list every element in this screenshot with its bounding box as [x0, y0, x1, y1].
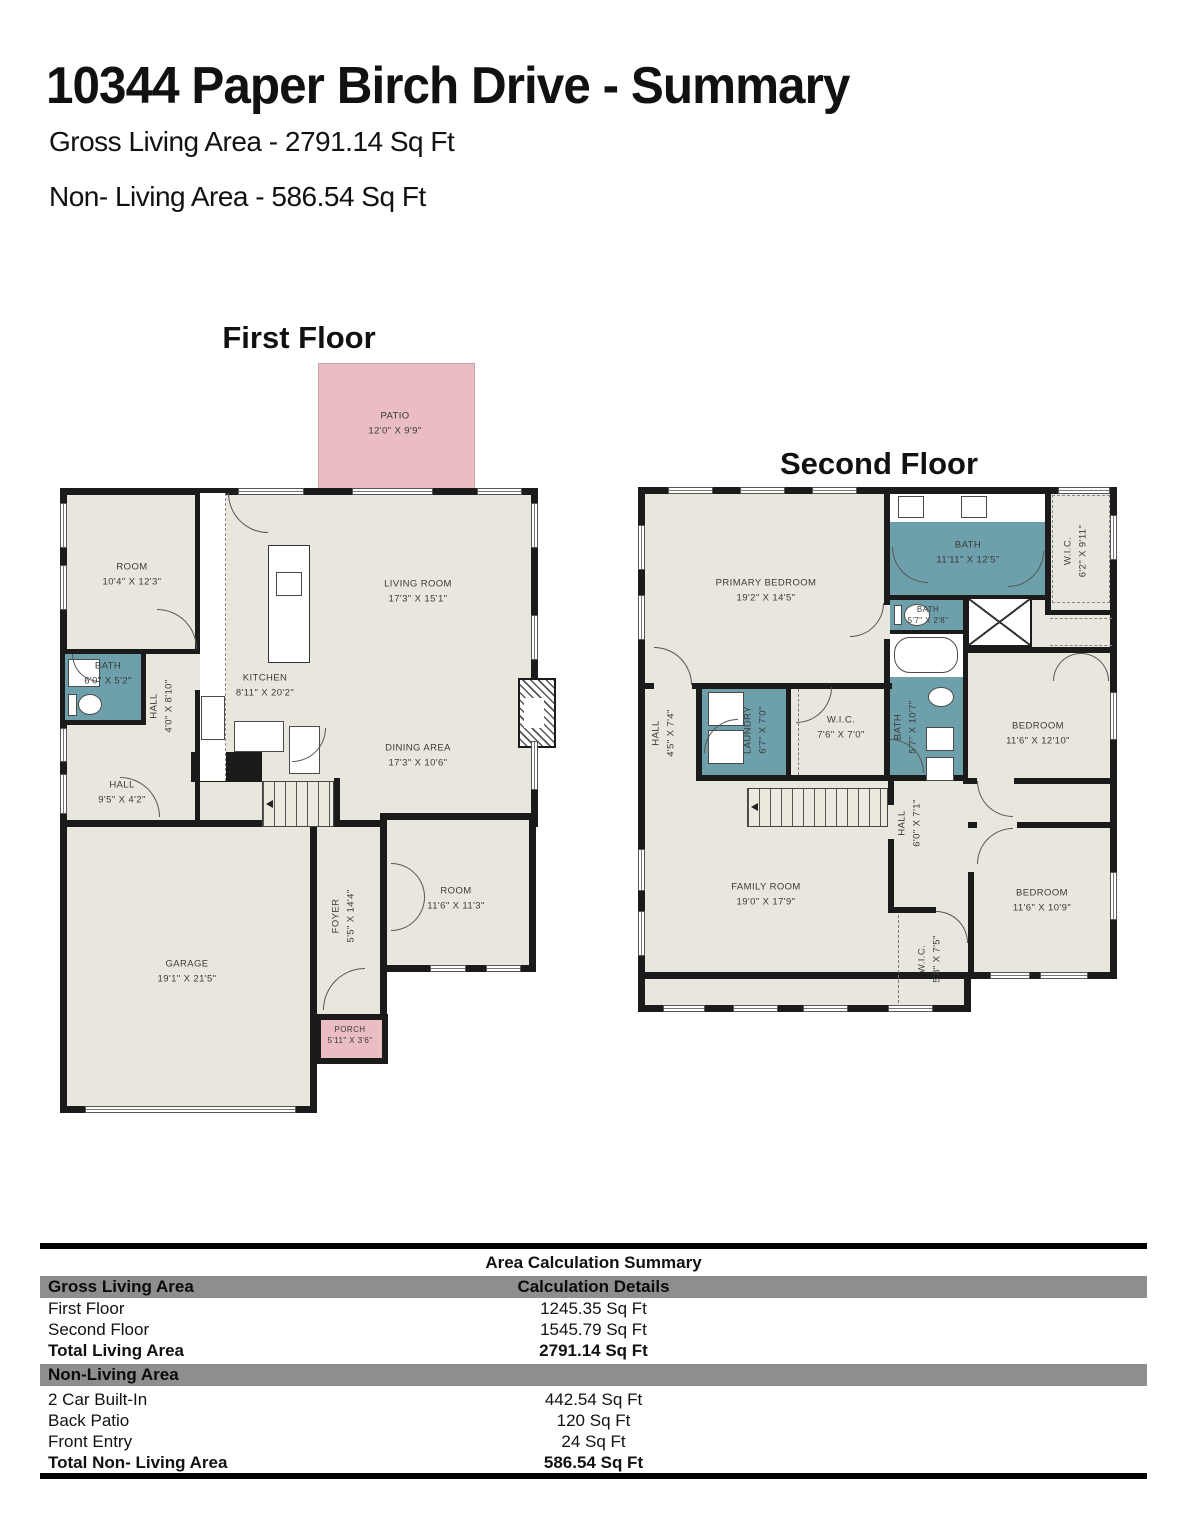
room-dims: 8'11" X 20'2"	[236, 686, 294, 701]
wall-segment	[1045, 487, 1051, 615]
room-dims: 17'3" X 10'6"	[389, 756, 448, 771]
wall-segment	[884, 487, 890, 605]
garage-door	[85, 1106, 296, 1113]
window	[486, 965, 521, 972]
room-label-hall-1: HALL 4'0" X 8'10"	[147, 679, 176, 732]
room-label-bath-vertical: BATH 5'7" X 10'7"	[891, 700, 920, 753]
room-label-laundry: LAUNDRY 6'7" X 7'0"	[741, 706, 770, 754]
room-name: HALL	[109, 778, 134, 793]
wall-segment	[638, 683, 654, 689]
room-dims: 9'5" X 4'2"	[98, 793, 146, 808]
second-floor-plan: PRIMARY BEDROOM 19'2" X 14'5" BATH 11'11…	[638, 487, 1138, 1032]
room-label-garage: GARAGE 19'1" X 21'5"	[158, 957, 217, 986]
table-row-front-entry: 24 Sq Ft Front Entry	[40, 1431, 1147, 1452]
bath-sink	[926, 727, 954, 751]
table-row-first-floor: 1245.35 Sq Ft First Floor	[40, 1298, 1147, 1319]
toilet-tank	[68, 694, 77, 716]
first-floor-heading: First Floor	[222, 320, 375, 356]
window	[663, 1005, 705, 1012]
window	[1110, 872, 1117, 920]
room-name: FAMILY ROOM	[731, 880, 801, 895]
room-label-bath-large: BATH 11'11" X 12'5"	[936, 538, 999, 567]
wall-segment	[884, 639, 890, 687]
room-name: PATIO	[380, 409, 409, 424]
room-label-foyer: FOYER 5'5" X 14'4"	[329, 889, 358, 942]
room-dims: 4'5" X 7'4"	[664, 709, 679, 757]
room-label-bedroom-mid: BEDROOM 11'6" X 12'10"	[1006, 719, 1070, 748]
closet-strip	[1050, 618, 1112, 646]
window	[638, 595, 645, 640]
first-floor-plan: PATIO 12'0" X 9'9" ROOM 10'4" X 12'3" LI…	[60, 360, 580, 1120]
room-name: BATH	[891, 714, 906, 740]
window	[60, 728, 67, 762]
area-calculation-table: Area Calculation Summary Calculation Det…	[40, 1243, 1147, 1479]
room-dims: 10'4" X 12'3"	[103, 575, 162, 590]
window	[812, 487, 857, 494]
table-row-back-patio: 120 Sq Ft Back Patio	[40, 1410, 1147, 1431]
section-header-label: Gross Living Area	[40, 1277, 194, 1297]
second-floor-heading: Second Floor	[780, 446, 978, 482]
window	[1110, 515, 1117, 560]
fireplace	[518, 678, 556, 748]
wall-segment	[1017, 822, 1117, 828]
window	[803, 1005, 848, 1012]
room-name: BATH	[917, 604, 939, 615]
room-name: BEDROOM	[1012, 719, 1064, 734]
room-dims: 19'1" X 21'5"	[158, 972, 217, 987]
window	[531, 741, 538, 790]
room-name: BATH	[955, 538, 981, 553]
room-name: HALL	[895, 810, 910, 835]
wall-segment	[888, 839, 894, 913]
bathtub	[894, 637, 958, 673]
window	[888, 1005, 933, 1012]
wall-segment	[968, 822, 977, 828]
wall-block	[334, 778, 340, 827]
room-dims: 11'11" X 12'5"	[936, 553, 999, 568]
window	[733, 1005, 778, 1012]
row-value: 120 Sq Ft	[40, 1411, 1147, 1431]
toilet-bowl	[78, 694, 102, 715]
room-dims: 19'2" X 14'5"	[737, 591, 796, 606]
window	[60, 503, 67, 548]
room-label-bath-small: BATH 5'7" X 2'8"	[908, 604, 949, 626]
room-dims: 12'0" X 9'9"	[368, 424, 421, 439]
room-dims: 7'6" X 7'0"	[817, 728, 865, 743]
wall-segment	[1014, 778, 1117, 784]
wall-segment	[963, 778, 977, 784]
window	[531, 503, 538, 548]
wall-segment	[963, 647, 1117, 653]
room-name: W.I.C.	[827, 713, 855, 728]
window	[1058, 487, 1110, 494]
row-value: 2791.14 Sq Ft	[40, 1341, 1147, 1361]
room-name: PORCH	[335, 1024, 366, 1035]
closet-dash-line	[898, 915, 899, 1003]
window	[740, 487, 785, 494]
row-label: First Floor	[40, 1299, 125, 1319]
window	[60, 565, 67, 610]
wall-segment	[786, 683, 791, 780]
wall-segment	[141, 649, 146, 725]
room-label-kitchen: KITCHEN 8'11" X 20'2"	[236, 671, 294, 700]
room-label-room-br: ROOM 11'6" X 11'3"	[427, 884, 484, 913]
room-name: DINING AREA	[385, 741, 451, 756]
window	[430, 965, 466, 972]
room-dims: 5'8" X 7'5"	[930, 935, 945, 983]
window	[638, 911, 645, 956]
room-dims: 11'6" X 12'10"	[1006, 734, 1070, 749]
room-dims: 11'6" X 11'3"	[427, 899, 484, 914]
wall-segment	[888, 907, 936, 913]
room-name: PRIMARY BEDROOM	[716, 576, 817, 591]
toilet-bowl	[928, 687, 954, 707]
appliance	[234, 721, 284, 752]
non-living-subtitle: Non- Living Area - 586.54 Sq Ft	[49, 181, 426, 213]
vanity-sink	[961, 496, 987, 518]
room-label-wic-mid: W.I.C. 7'6" X 7'0"	[817, 713, 865, 742]
room-label-hall-left: HALL 4'5" X 7'4"	[649, 709, 678, 757]
wall-segment	[890, 630, 965, 634]
room-label-bedroom-br: BEDROOM 11'6" X 10'9"	[1013, 886, 1071, 915]
window	[668, 487, 713, 494]
window	[638, 525, 645, 570]
row-label: Front Entry	[40, 1432, 132, 1452]
stairs-second-floor	[747, 788, 888, 827]
bath-sink	[926, 757, 954, 781]
row-value: 442.54 Sq Ft	[40, 1390, 1147, 1410]
room-name: ROOM	[116, 560, 147, 575]
room-name: W.I.C.	[915, 945, 930, 973]
window	[1110, 692, 1117, 740]
room-dims: 5'11" X 3'6"	[328, 1035, 373, 1046]
room-name: LIVING ROOM	[384, 577, 452, 592]
fireplace-inner	[524, 698, 544, 728]
room-dims: 6'2" X 9'11"	[1076, 525, 1091, 578]
wall-segment	[888, 775, 894, 805]
room-label-bath: BATH 6'0" X 5'2"	[84, 659, 132, 688]
room-dims: 6'7" X 7'0"	[756, 706, 771, 754]
room-name: GARAGE	[165, 957, 208, 972]
table-section-header-gross: Calculation Details Gross Living Area	[40, 1276, 1147, 1298]
wall-segment	[1045, 610, 1117, 615]
kitchen-island	[268, 545, 310, 663]
table-bottom-border	[40, 1473, 1147, 1479]
window	[477, 488, 522, 495]
row-value: 1545.79 Sq Ft	[40, 1320, 1147, 1340]
row-label: Total Living Area	[40, 1341, 184, 1361]
room-label-porch: PORCH 5'11" X 3'6"	[328, 1024, 373, 1046]
room-name: HALL	[147, 693, 162, 718]
row-label: Total Non- Living Area	[40, 1453, 227, 1473]
wall-segment	[696, 683, 702, 780]
table-row-2-car-built-in: 442.54 Sq Ft 2 Car Built-In	[40, 1389, 1147, 1410]
gross-living-subtitle: Gross Living Area - 2791.14 Sq Ft	[49, 126, 454, 158]
table-section-header-nonliving: Non-Living Area	[40, 1364, 1147, 1386]
table-row-second-floor: 1545.79 Sq Ft Second Floor	[40, 1319, 1147, 1340]
room-name: KITCHEN	[243, 671, 288, 686]
room-label-wic-tr: W.I.C. 6'2" X 9'11"	[1061, 525, 1090, 578]
page-title: 10344 Paper Birch Drive - Summary	[46, 56, 849, 116]
row-value: 24 Sq Ft	[40, 1432, 1147, 1452]
toilet-tank	[894, 605, 902, 625]
floorplan-summary-page: 10344 Paper Birch Drive - Summary Gross …	[0, 0, 1187, 1536]
section-header-label: Non-Living Area	[40, 1365, 179, 1385]
room-dims: 5'7" X 10'7"	[906, 700, 921, 753]
room-name: BATH	[95, 659, 121, 674]
room-dims: 5'7" X 2'8"	[908, 615, 949, 626]
room-label-patio: PATIO 12'0" X 9'9"	[368, 409, 421, 438]
room-label-dining-area: DINING AREA 17'3" X 10'6"	[385, 741, 451, 770]
wall-segment	[692, 683, 892, 689]
room-name: FOYER	[329, 899, 344, 934]
room-label-family-room: FAMILY ROOM 19'0" X 17'9"	[731, 880, 801, 909]
room-dims: 17'3" X 15'1"	[389, 592, 448, 607]
table-row-total-living: 2791.14 Sq Ft Total Living Area	[40, 1340, 1147, 1361]
room-label-hall-mid: HALL 6'0" X 7'1"	[895, 799, 924, 847]
row-label: 2 Car Built-In	[40, 1390, 147, 1410]
room-dims: 6'0" X 5'2"	[84, 674, 132, 689]
window	[990, 972, 1030, 979]
room-label-room-tl: ROOM 10'4" X 12'3"	[103, 560, 162, 589]
sliding-door	[352, 488, 433, 495]
stairs-direction-arrow	[751, 803, 758, 811]
room-label-hall-2: HALL 9'5" X 4'2"	[98, 778, 146, 807]
room-name: LAUNDRY	[741, 706, 756, 754]
room-dims: 6'0" X 7'1"	[910, 799, 925, 847]
row-label: Second Floor	[40, 1320, 149, 1340]
room-name: ROOM	[440, 884, 471, 899]
room-label-living-room: LIVING ROOM 17'3" X 15'1"	[384, 577, 452, 606]
room-dims: 4'0" X 8'10"	[162, 679, 177, 732]
room-dims: 5'5" X 14'4"	[344, 889, 359, 942]
shower	[967, 597, 1032, 647]
window	[638, 849, 645, 891]
wall-segment	[60, 720, 146, 725]
window	[60, 774, 67, 814]
row-label: Back Patio	[40, 1411, 129, 1431]
room-name: BEDROOM	[1016, 886, 1068, 901]
stove	[201, 696, 225, 740]
room-dims: 11'6" X 10'9"	[1013, 901, 1071, 916]
island-sink	[276, 572, 302, 596]
window	[1040, 972, 1088, 979]
room-label-primary-bedroom: PRIMARY BEDROOM 19'2" X 14'5"	[716, 576, 817, 605]
wall-segment	[968, 872, 974, 978]
room-dims: 19'0" X 17'9"	[737, 895, 796, 910]
vanity-sink	[898, 496, 924, 518]
column-header-calculation-details: Calculation Details	[40, 1277, 1147, 1297]
table-title: Area Calculation Summary	[40, 1249, 1147, 1276]
window	[531, 615, 538, 660]
room-name: W.I.C.	[1061, 537, 1076, 565]
table-row-total-nonliving: 586.54 Sq Ft Total Non- Living Area	[40, 1452, 1147, 1473]
room-label-wic-br: W.I.C. 5'8" X 7'5"	[915, 935, 944, 983]
row-value: 1245.35 Sq Ft	[40, 1299, 1147, 1319]
room-name: HALL	[649, 720, 664, 745]
stairs-direction-arrow	[266, 800, 273, 808]
